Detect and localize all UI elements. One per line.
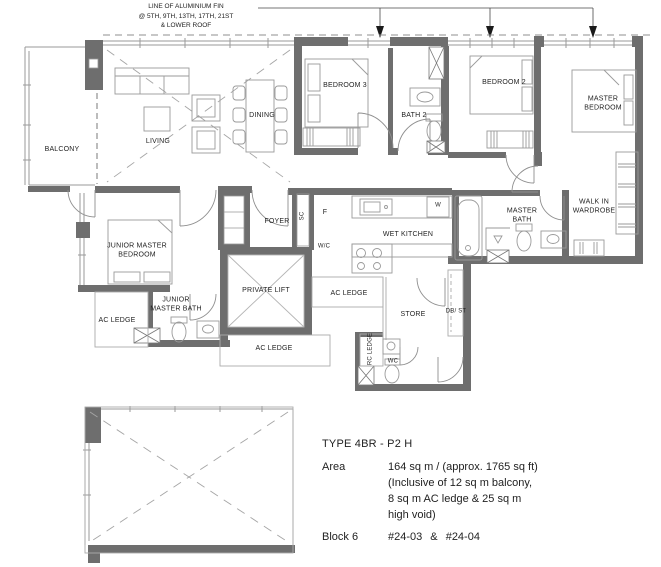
ac-ledge-left-label: AC LEDGE: [97, 317, 137, 326]
walls: [28, 36, 643, 563]
wc-label: WC: [388, 359, 398, 366]
wet-kitchen-label: WET KITCHEN: [382, 231, 434, 240]
rc-ledge-label: RC LEDGE: [368, 332, 375, 366]
fin-annotation-line3: & LOWER ROOF: [110, 21, 262, 31]
water-closet-label: W/C: [318, 244, 330, 251]
bedroom2-label: BEDROOM 2: [482, 79, 526, 88]
fridge-label: F: [323, 209, 327, 218]
walk-in-wardrobe-label: WALK IN WARDROBE: [557, 199, 631, 216]
shoe-cabinet-label: SC: [300, 212, 307, 221]
bedroom3-label: BEDROOM 3: [323, 82, 367, 91]
unit-type-title: TYPE 4BR - P2 H: [322, 438, 412, 450]
balcony-label: BALCONY: [45, 146, 80, 155]
fin-annotation: LINE OF ALUMINIUM FIN @ 5TH, 9TH, 13TH, …: [110, 2, 262, 31]
washer-label: W: [435, 203, 441, 210]
fin-leader-line: [258, 8, 593, 26]
area-value-line1: 164 sq m / (approx. 1765 sq ft): [388, 461, 538, 473]
foyer-label: FOYER: [264, 218, 289, 227]
master-bedroom-label: MASTER BEDROOM: [574, 96, 632, 113]
dining-label: DINING: [249, 112, 275, 121]
db-st-label: DB/ ST: [445, 309, 467, 316]
area-value-line2: (Inclusive of 12 sq m balcony,: [388, 477, 532, 489]
floor-plan: LINE OF ALUMINIUM FIN @ 5TH, 9TH, 13TH, …: [0, 0, 661, 567]
area-label: Area: [322, 461, 345, 473]
junior-master-bath-label: JUNIOR MASTER BATH: [149, 297, 203, 314]
unit-numbers: #24-03 & #24-04: [388, 531, 480, 543]
area-value-line3: 8 sq m AC ledge & 25 sq m: [388, 493, 521, 505]
fin-annotation-line2: @ 5TH, 9TH, 13TH, 17TH, 21ST: [110, 12, 262, 22]
store-label: STORE: [401, 311, 426, 320]
ac-ledge-bottom-label: AC LEDGE: [256, 345, 293, 354]
fin-annotation-line1: LINE OF ALUMINIUM FIN: [110, 2, 262, 12]
area-value-line4: high void): [388, 509, 436, 521]
private-lift-label: PRIVATE LIFT: [240, 287, 292, 296]
block-label: Block 6: [322, 531, 358, 543]
junior-bath-fixtures: [171, 317, 219, 342]
living-label: LIVING: [146, 138, 170, 147]
fin-arrow-icons: [376, 26, 597, 38]
junior-master-bedroom-label: JUNIOR MASTER BEDROOM: [105, 243, 169, 260]
bedroom2-bed: [470, 56, 533, 148]
master-bath-fixtures: [455, 196, 566, 260]
master-bath-label: MASTER BATH: [497, 208, 547, 225]
bath2-label: BATH 2: [401, 112, 426, 121]
ac-ledge-mid-label: AC LEDGE: [331, 290, 368, 299]
